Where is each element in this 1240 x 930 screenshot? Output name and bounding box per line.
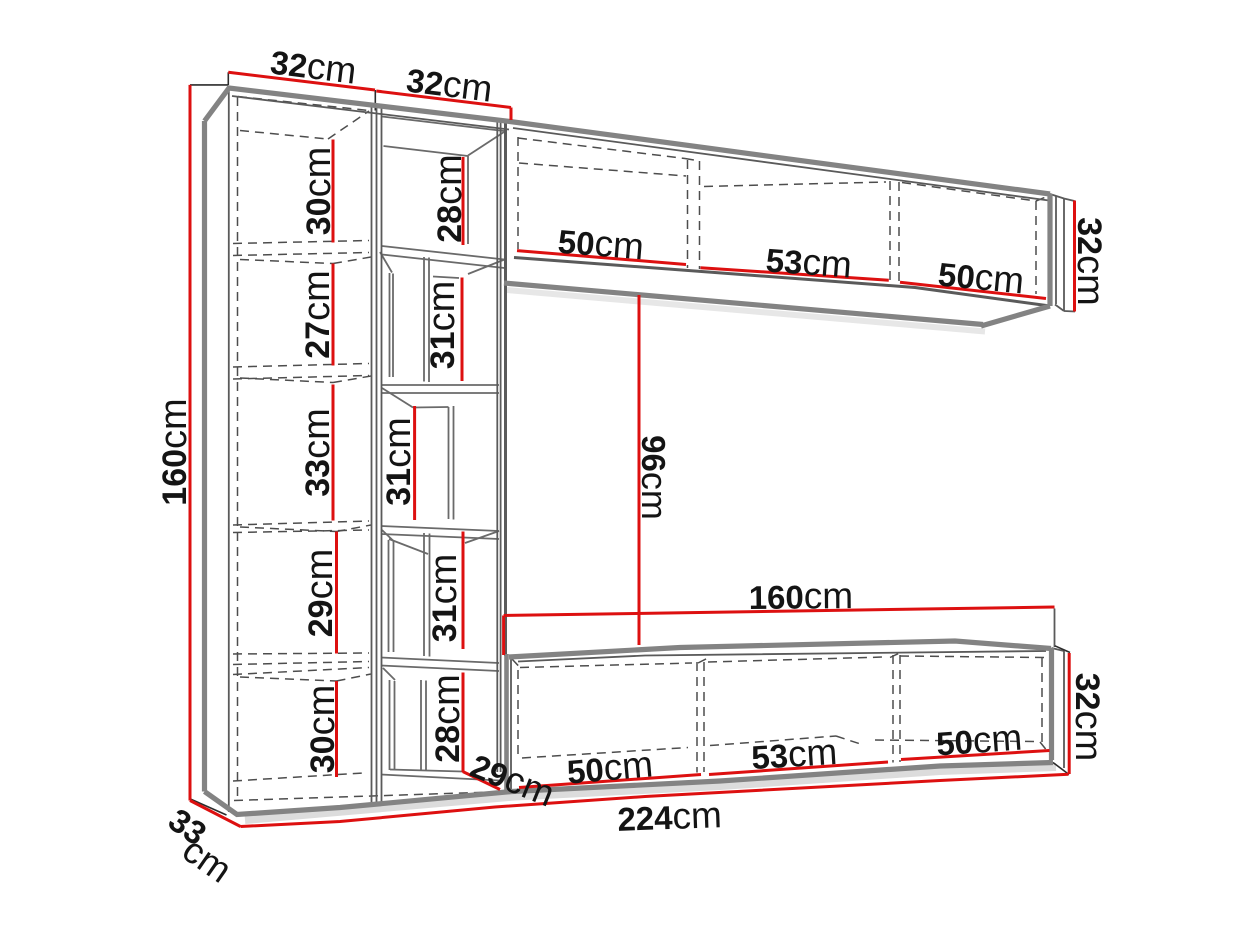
svg-text:28cm: 28cm	[428, 154, 470, 242]
svg-text:30cm: 30cm	[301, 685, 343, 773]
svg-text:50cm: 50cm	[556, 220, 645, 268]
svg-text:31cm: 31cm	[377, 417, 419, 505]
svg-text:29cm: 29cm	[299, 549, 341, 637]
svg-text:28cm: 28cm	[426, 674, 468, 762]
svg-text:224cm: 224cm	[617, 794, 723, 839]
svg-text:30cm: 30cm	[297, 147, 339, 235]
svg-text:27cm: 27cm	[296, 270, 338, 358]
svg-text:160cm: 160cm	[749, 575, 854, 617]
svg-text:53cm: 53cm	[750, 731, 838, 777]
svg-text:32cm: 32cm	[1069, 217, 1111, 305]
svg-text:53cm: 53cm	[765, 238, 854, 285]
svg-text:33cm: 33cm	[296, 408, 338, 496]
svg-text:31cm: 31cm	[423, 554, 465, 642]
svg-text:32cm: 32cm	[1067, 673, 1109, 761]
svg-text:31cm: 31cm	[421, 281, 463, 369]
svg-text:96cm: 96cm	[634, 435, 675, 520]
svg-text:160cm: 160cm	[153, 398, 195, 505]
